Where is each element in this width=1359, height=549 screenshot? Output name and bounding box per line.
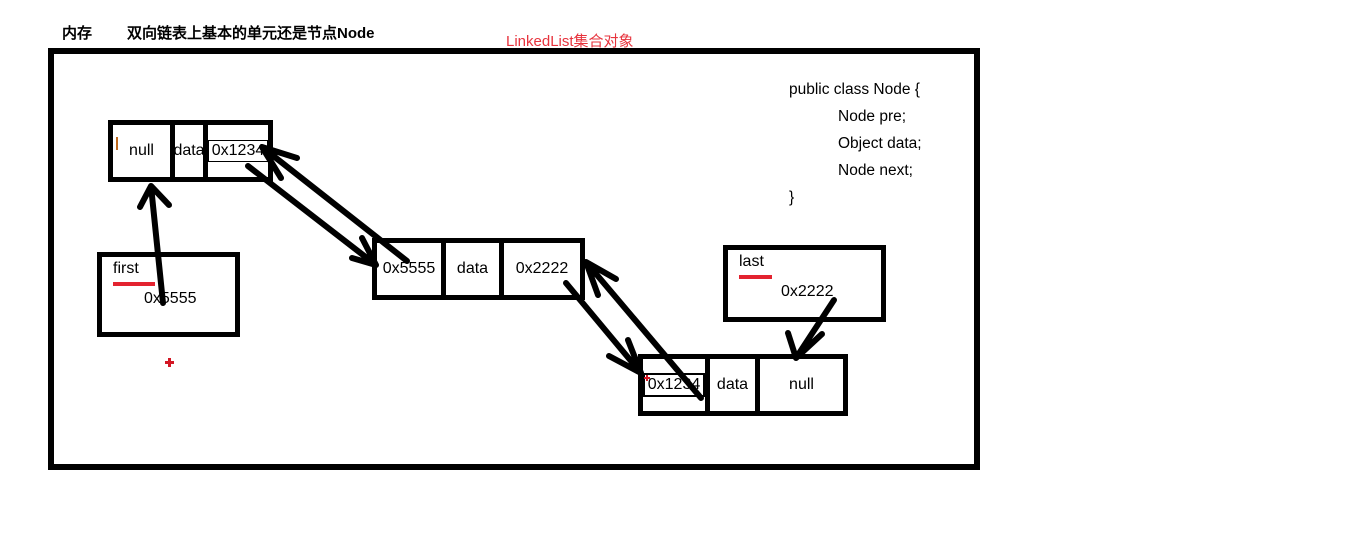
node-pre-value: null [129, 142, 154, 160]
last-value: 0x2222 [781, 283, 834, 301]
node-next-value: 0x1234 [208, 140, 268, 162]
code-line: public class Node { [789, 76, 922, 103]
list-node-head: null data 0x1234 [108, 120, 273, 182]
code-line: } [789, 184, 922, 211]
node-next-cell: 0x2222 [504, 243, 580, 295]
node-data-cell: data [175, 125, 203, 177]
node-data-cell: data [710, 359, 755, 411]
node-pre-cell: 0x5555 [377, 243, 441, 295]
node-pre-value: 0x1234 [643, 373, 705, 397]
memory-label: 内存 [62, 22, 92, 43]
first-label: first [113, 260, 139, 278]
node-next-value: 0x2222 [516, 260, 569, 278]
node-pre-cell: null [113, 125, 170, 177]
code-line: Object data; [838, 130, 922, 157]
node-next-cell: null [760, 359, 843, 411]
node-class-code: public class Node { Node pre; Object dat… [789, 76, 922, 211]
last-pointer-box: last 0x2222 [723, 245, 886, 322]
red-cursor-mark [165, 358, 174, 367]
node-data-value: data [717, 376, 748, 394]
first-pointer-box: first 0x5555 [97, 252, 240, 337]
code-line: Node next; [838, 157, 922, 184]
node-next-cell: 0x1234 [208, 125, 268, 177]
list-node-tail: 0x1234 data null [638, 354, 848, 416]
list-node-middle: 0x5555 data 0x2222 [372, 238, 585, 300]
last-red-underline [739, 275, 772, 279]
code-line: Node pre; [838, 103, 922, 130]
text-caret-mark [116, 137, 118, 150]
last-label: last [739, 253, 764, 271]
diagram-title: 双向链表上基本的单元还是节点Node [127, 22, 375, 43]
node-pre-value: 0x5555 [383, 260, 436, 278]
drawing-canvas: 内存 双向链表上基本的单元还是节点Node LinkedList集合对象 pub… [0, 0, 1359, 549]
node-next-value: null [789, 376, 814, 394]
node-pre-cell: 0x1234 [643, 359, 705, 411]
first-red-underline [113, 282, 155, 286]
red-cursor-mark [644, 375, 650, 381]
node-data-value: data [457, 260, 488, 278]
node-data-cell: data [446, 243, 499, 295]
node-data-value: data [175, 142, 203, 160]
first-value: 0x5555 [144, 290, 197, 308]
